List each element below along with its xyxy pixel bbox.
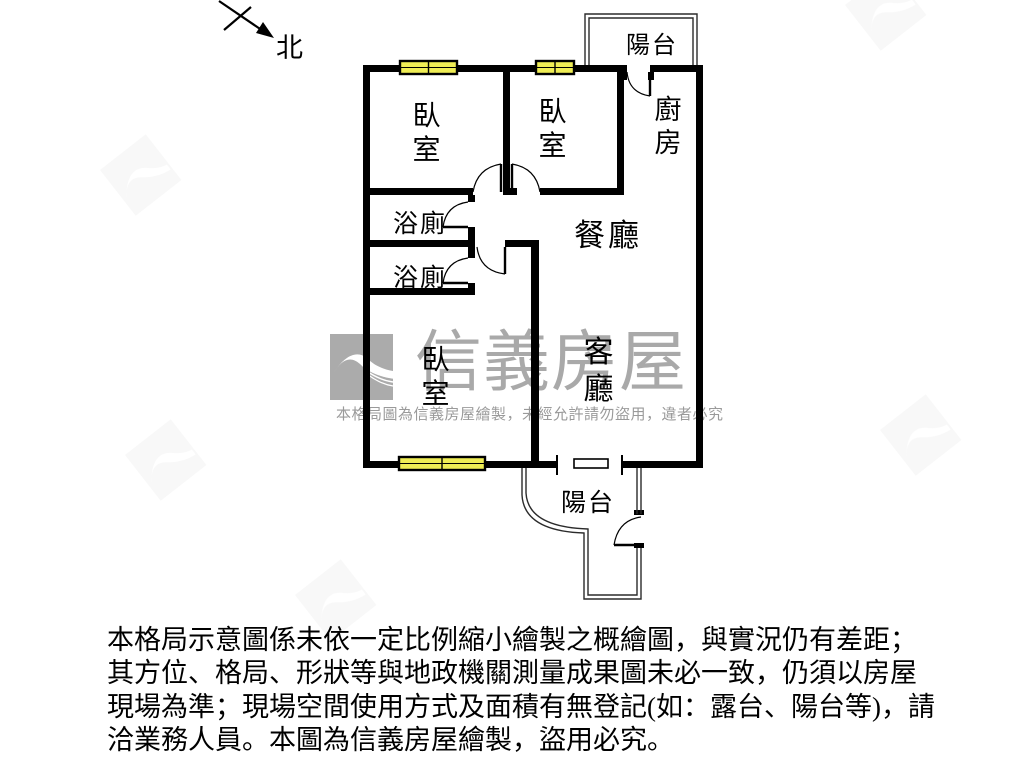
room-label-bath-lower: 浴廁 xyxy=(393,258,447,294)
disclaimer-line-4: 洽業務人員。本圖為信義房屋繪製，盜用必究。 xyxy=(107,724,937,757)
room-label-bedroom-bottom: 臥室 xyxy=(420,344,451,412)
disclaimer-line-3: 現場為準；現場空間使用方式及面積有無登記(如：露台、陽台等)，請 xyxy=(107,691,937,724)
floorplan-image: 信義房屋 本格局圖為信義房屋繪製，未經允許請勿盜用，違者必究 xyxy=(0,0,1024,768)
north-label: 北 xyxy=(276,26,303,65)
disclaimer-text: 本格局示意圖係未依一定比例縮小繪製之概繪圖，與實況仍有差距； 其方位、格局、形狀… xyxy=(107,624,937,757)
room-label-dining: 餐廳 xyxy=(574,210,642,255)
room-label-balcony-bottom: 陽台 xyxy=(561,483,615,519)
room-label-bedroom-top-mid: 臥室 xyxy=(537,96,568,164)
room-label-balcony-top: 陽台 xyxy=(626,25,678,60)
disclaimer-line-1: 本格局示意圖係未依一定比例縮小繪製之概繪圖，與實況仍有差距； xyxy=(107,624,937,657)
disclaimer-line-2: 其方位、格局、形狀等與地政機關測量成果圖未必一致，仍須以房屋 xyxy=(107,657,937,690)
room-label-living: 客廳 xyxy=(582,334,615,408)
room-label-bedroom-top-left: 臥室 xyxy=(411,100,442,168)
room-label-kitchen: 廚房 xyxy=(653,94,683,160)
room-label-bath-upper: 浴廁 xyxy=(393,204,447,240)
